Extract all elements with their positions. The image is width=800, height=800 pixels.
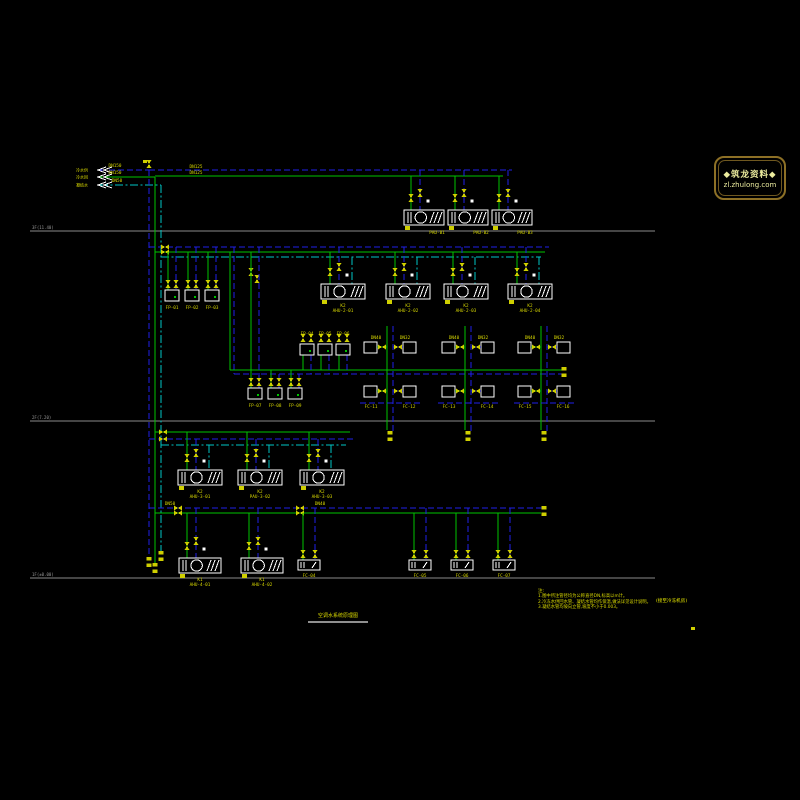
valve-half — [194, 541, 199, 545]
drain-pan-icon — [180, 574, 185, 578]
valve-icon — [194, 449, 199, 457]
valve-icon — [472, 389, 480, 394]
valve-half — [194, 280, 199, 284]
tick-mark — [143, 160, 147, 163]
unit-tag: FC-14 — [481, 404, 494, 410]
unit-tag: AHU-2-02 — [398, 308, 419, 314]
drain-pan-icon — [493, 226, 498, 230]
fcu-coil-mark — [309, 350, 311, 352]
valve-half — [460, 389, 464, 394]
unit-tag: FP-06 — [337, 331, 350, 337]
ahu-unit: K2AHU-3-01 — [178, 432, 222, 500]
valve-icon — [296, 506, 304, 511]
fcu-coil-mark — [277, 394, 279, 396]
fcu-coil-mark — [214, 296, 216, 298]
valve-half — [345, 338, 350, 342]
drain-pan-icon — [179, 486, 184, 490]
valve-icon — [186, 280, 191, 288]
valve-icon — [394, 389, 402, 394]
valve-half — [185, 546, 190, 550]
valve-half — [548, 345, 552, 350]
valve-half — [254, 453, 259, 457]
valve-icon — [249, 378, 254, 386]
piping-diagram: 3F(11.40)2F(7.20)1F(±0.00)冷水供冷水回凝结水DN150… — [0, 0, 800, 800]
riser-assembly: DN40DN32FC-11FC-12 — [360, 326, 420, 441]
valve-icon — [159, 437, 167, 442]
valve-half — [476, 389, 480, 394]
valve-half — [402, 267, 407, 271]
valve-half — [409, 194, 414, 198]
valve-half — [424, 554, 429, 558]
valve-half — [536, 389, 540, 394]
valve-half — [174, 284, 179, 288]
valve-half — [186, 284, 191, 288]
fan-coil-unit: FP-04 — [300, 331, 314, 374]
valve-half — [454, 550, 459, 554]
fan-coil-unit: FP-06 — [336, 331, 350, 374]
valve-half — [247, 542, 252, 546]
valve-half — [409, 198, 414, 202]
valve-half — [378, 389, 382, 394]
valve-half — [466, 550, 471, 554]
unit-tag: FC-12 — [403, 404, 416, 410]
fan-coil-unit: FP-05 — [318, 331, 332, 374]
valve-half — [337, 263, 342, 267]
valve-icon — [206, 280, 211, 288]
supply-source: 冷水供 — [76, 167, 112, 174]
unit-tag: PAU-B2 — [473, 230, 489, 236]
unit-tag: AHU-2-04 — [520, 308, 541, 314]
valve-icon — [185, 542, 190, 550]
pipe-endcap-icon — [153, 563, 158, 573]
fcu-box — [268, 388, 282, 399]
valve-half — [398, 389, 402, 394]
unit-tag: FC-04 — [303, 573, 316, 579]
valve-half — [289, 378, 294, 382]
unit-tag: PAU-B3 — [517, 230, 533, 236]
valve-half — [301, 338, 306, 342]
valve-icon — [277, 378, 282, 386]
valve-half — [496, 550, 501, 554]
valve-half — [214, 280, 219, 284]
fan-coil-unit: FC-04 — [298, 508, 320, 579]
fcu-box — [248, 388, 262, 399]
riser-assembly: DN40DN32FC-15FC-16 — [514, 326, 574, 441]
valve-icon — [508, 550, 513, 558]
valve-icon — [532, 389, 540, 394]
valve-half — [454, 554, 459, 558]
valve-half — [418, 193, 423, 197]
pipe-endcap-icon — [147, 557, 152, 567]
pipe-endcap-icon — [159, 551, 164, 561]
pipe-endcap-icon — [466, 431, 471, 441]
valve-half — [506, 189, 511, 193]
valve-icon — [418, 189, 423, 197]
drain-pan-icon — [509, 300, 514, 304]
note-line: 3.凝结水管均坡向立管,坡度不小于0.003。 — [538, 605, 708, 610]
ahu-unit: PAU-B1 — [404, 170, 445, 236]
pipe-size-label: DN150 — [109, 170, 122, 176]
fcu-box — [481, 342, 494, 353]
fcu-box — [364, 386, 377, 397]
unit-tag: FC-16 — [557, 404, 570, 410]
valve-half — [337, 267, 342, 271]
cad-drawing-canvas: 3F(11.40)2F(7.20)1F(±0.00)冷水供冷水回凝结水DN150… — [0, 0, 800, 800]
unit-tag: AHU-2-01 — [333, 308, 354, 314]
endcap-part — [542, 513, 547, 517]
endcap-part — [388, 438, 393, 442]
endcap-part — [542, 506, 547, 510]
valve-icon — [515, 268, 520, 276]
drain-pan-icon — [387, 300, 392, 304]
pipe-size-label: DN150 — [109, 163, 122, 169]
logo-site-url: zl.zhulong.com — [719, 181, 781, 189]
drain-pan-icon — [449, 226, 454, 230]
floor-label: 3F(11.40) — [32, 225, 54, 230]
valve-icon — [409, 194, 414, 202]
unit-tag: FP-03 — [206, 305, 219, 311]
ahu-unit: K1AHU-4-01 — [179, 508, 221, 588]
unit-tag: AHU-3-01 — [190, 494, 211, 500]
valve-half — [456, 345, 460, 350]
valve-half — [506, 193, 511, 197]
valve-half — [453, 194, 458, 198]
valve-half — [328, 272, 333, 276]
valve-icon — [257, 378, 262, 386]
union-icon — [265, 548, 268, 551]
valve-half — [319, 338, 324, 342]
valve-half — [289, 382, 294, 386]
valve-half — [393, 272, 398, 276]
valve-icon — [378, 345, 386, 350]
fcu-box — [557, 342, 570, 353]
valve-half — [424, 550, 429, 554]
pipe-size-label: DN32 — [554, 335, 565, 341]
valve-half — [536, 345, 540, 350]
valve-half — [378, 345, 382, 350]
ahu-unit: PAU-B2 — [448, 170, 489, 236]
union-icon — [427, 200, 430, 203]
fcu-box — [300, 344, 314, 355]
fcu-box — [442, 342, 455, 353]
valve-half — [309, 338, 314, 342]
ahu-unit: K1AHU-4-02 — [241, 508, 283, 588]
valve-half — [186, 280, 191, 284]
valve-half — [245, 458, 250, 462]
union-icon — [411, 274, 414, 277]
valve-half — [249, 382, 254, 386]
valve-half — [382, 345, 386, 350]
valve-icon — [424, 550, 429, 558]
valve-half — [394, 345, 398, 350]
valve-icon — [496, 550, 501, 558]
title-underline — [308, 621, 368, 623]
valve-icon — [194, 280, 199, 288]
valve-icon — [497, 194, 502, 202]
valve-icon — [454, 550, 459, 558]
valve-half — [165, 245, 169, 250]
drain-pan-icon — [445, 300, 450, 304]
valve-half — [166, 280, 171, 284]
valve-half — [515, 272, 520, 276]
drain-pan-icon — [322, 300, 327, 304]
valve-half — [214, 284, 219, 288]
valve-half — [508, 550, 513, 554]
valve-half — [316, 453, 321, 457]
valve-half — [178, 511, 182, 516]
fan-coil-unit: FC-05 — [409, 508, 431, 579]
fcu-box — [318, 344, 332, 355]
valve-half — [460, 267, 465, 271]
fcu-box — [481, 386, 494, 397]
valve-half — [269, 382, 274, 386]
valve-icon — [456, 345, 464, 350]
fan-coil-unit: FC-07 — [493, 508, 515, 579]
endcap-part — [159, 551, 164, 555]
valve-half — [476, 345, 480, 350]
drawing-title-text: 空调水系统原理图 — [318, 613, 358, 619]
ahu-unit: K2AHU-3-03 — [300, 432, 344, 500]
valve-half — [147, 164, 152, 168]
valve-half — [412, 550, 417, 554]
endcap-part — [542, 438, 547, 442]
side-note: (接至冷冻机房) — [656, 598, 687, 604]
valve-half — [257, 378, 262, 382]
pipe-size-label: DN40 — [315, 501, 326, 507]
fcu-box — [403, 342, 416, 353]
valve-half — [163, 437, 167, 442]
ahu-unit: K2AHU-2-04 — [508, 247, 552, 314]
endcap-part — [153, 570, 158, 574]
pipe-size-label: DN32 — [478, 335, 489, 341]
valve-half — [194, 284, 199, 288]
pipe-endcap-icon — [542, 506, 547, 516]
valve-half — [297, 378, 302, 382]
valve-half — [402, 263, 407, 267]
unit-tag: FP-07 — [249, 403, 262, 409]
valve-half — [297, 382, 302, 386]
valve-icon — [269, 378, 274, 386]
floor-line: 3F(11.40) — [30, 225, 655, 231]
valve-half — [328, 268, 333, 272]
pipe-size-label: DN40 — [371, 335, 382, 341]
valve-icon — [506, 189, 511, 197]
fan-coil-unit: FP-08 — [268, 370, 282, 409]
valve-icon — [159, 430, 167, 435]
valve-half — [552, 345, 556, 350]
valve-half — [163, 430, 167, 435]
pipe-size-label: DN125 — [190, 164, 203, 170]
valve-icon — [174, 280, 179, 288]
unit-tag: FC-06 — [456, 573, 469, 579]
valve-half — [249, 378, 254, 382]
pipe-size-label: DN125 — [190, 170, 203, 176]
endcap-part — [388, 431, 393, 435]
unit-tag: FP-01 — [166, 305, 179, 311]
valve-icon — [247, 542, 252, 550]
valve-half — [313, 550, 318, 554]
valve-half — [337, 338, 342, 342]
fcu-box — [442, 386, 455, 397]
valve-half — [277, 378, 282, 382]
valve-half — [307, 454, 312, 458]
valve-half — [174, 511, 178, 516]
valve-half — [451, 268, 456, 272]
drain-pan-icon — [301, 486, 306, 490]
valve-icon — [328, 268, 333, 276]
valve-icon — [451, 268, 456, 276]
drain-pan-icon — [239, 486, 244, 490]
union-icon — [533, 274, 536, 277]
union-icon — [203, 460, 206, 463]
fcu-box — [205, 290, 219, 301]
valve-half — [256, 537, 261, 541]
valve-icon — [548, 389, 556, 394]
valve-half — [496, 554, 501, 558]
valve-half — [393, 268, 398, 272]
valve-half — [418, 189, 423, 193]
endcap-part — [153, 563, 158, 567]
valve-icon — [256, 537, 261, 545]
valve-half — [254, 449, 259, 453]
fan-coil-unit: FP-09 — [288, 370, 302, 409]
ahu-unit: PAU-B3 — [492, 170, 533, 236]
pipe-size-label: DN50 — [165, 501, 176, 507]
valve-half — [194, 537, 199, 541]
unit-tag: AHU-4-01 — [190, 582, 211, 588]
valve-icon — [456, 389, 464, 394]
unit-tag: FP-05 — [319, 331, 332, 337]
union-icon — [263, 460, 266, 463]
union-icon — [346, 274, 349, 277]
unit-tag: PAU-3-02 — [250, 494, 271, 500]
valve-half — [269, 378, 274, 382]
valve-half — [194, 453, 199, 457]
valve-half — [515, 268, 520, 272]
valve-icon — [524, 263, 529, 271]
valve-half — [185, 454, 190, 458]
riser-assembly: DN40DN32FC-13FC-14 — [438, 326, 498, 441]
pipe-endcap-icon — [562, 367, 567, 377]
endcap-part — [542, 431, 547, 435]
unit-tag: FC-11 — [365, 404, 378, 410]
valve-icon — [337, 263, 342, 271]
valve-half — [161, 250, 165, 255]
endcap-part — [466, 438, 471, 442]
valve-half — [394, 389, 398, 394]
valve-half — [161, 245, 165, 250]
unit-tag: FP-09 — [289, 403, 302, 409]
valve-icon — [194, 537, 199, 545]
valve-half — [300, 506, 304, 511]
valve-half — [313, 554, 318, 558]
unit-tag: FC-05 — [414, 573, 427, 579]
source-label: 冷水回 — [76, 174, 88, 180]
unit-tag: FP-02 — [186, 305, 199, 311]
fcu-coil-mark — [174, 296, 176, 298]
valve-half — [166, 284, 171, 288]
valve-half — [466, 554, 471, 558]
valve-half — [206, 284, 211, 288]
valve-half — [524, 263, 529, 267]
pipe-size-label: DN40 — [525, 335, 536, 341]
valve-icon — [174, 506, 182, 511]
endcap-part — [562, 374, 567, 378]
endcap-part — [466, 431, 471, 435]
fcu-coil-mark — [257, 394, 259, 396]
fcu-coil-mark — [345, 350, 347, 352]
union-icon — [203, 548, 206, 551]
valve-half — [451, 272, 456, 276]
valve-half — [247, 546, 252, 550]
pipe-endcap-icon — [542, 431, 547, 441]
valve-half — [453, 198, 458, 202]
valve-icon — [161, 245, 169, 250]
valve-icon — [532, 345, 540, 350]
drain-pan-icon — [405, 226, 410, 230]
fan-coil-unit: FC-06 — [451, 508, 473, 579]
valve-half — [147, 160, 152, 164]
valve-half — [206, 280, 211, 284]
valve-half — [301, 554, 306, 558]
fcu-box — [165, 290, 179, 301]
valve-icon — [466, 550, 471, 558]
unit-tag: AHU-2-03 — [456, 308, 477, 314]
valve-half — [552, 389, 556, 394]
union-icon — [469, 274, 472, 277]
valve-half — [456, 389, 460, 394]
valve-half — [178, 506, 182, 511]
valve-half — [174, 280, 179, 284]
valve-half — [301, 550, 306, 554]
source-label: 凝结水 — [76, 182, 88, 188]
unit-tag: PAU-B1 — [429, 230, 445, 236]
valve-icon — [472, 345, 480, 350]
valve-icon — [307, 454, 312, 462]
valve-icon — [378, 389, 386, 394]
valve-icon — [412, 550, 417, 558]
valve-half — [472, 389, 476, 394]
ahu-unit: K2PAU-3-02 — [238, 432, 282, 500]
unit-tag: FP-04 — [301, 331, 314, 337]
valve-icon — [254, 449, 259, 457]
unit-tag: FC-15 — [519, 404, 532, 410]
valve-half — [185, 458, 190, 462]
valve-icon — [214, 280, 219, 288]
source-label: 冷水供 — [76, 167, 88, 173]
fcu-box — [518, 386, 531, 397]
valve-half — [462, 193, 467, 197]
valve-icon — [453, 194, 458, 202]
valve-icon — [174, 511, 182, 516]
valve-half — [277, 382, 282, 386]
valve-half — [245, 454, 250, 458]
valve-half — [460, 263, 465, 267]
endcap-part — [147, 557, 152, 561]
floor-label: 1F(±0.00) — [32, 572, 54, 577]
valve-icon — [393, 268, 398, 276]
valve-half — [296, 506, 300, 511]
drawing-title: 空调水系统原理图 — [300, 612, 376, 623]
fcu-box — [185, 290, 199, 301]
pipe-endcap-icon — [388, 431, 393, 441]
valve-half — [296, 511, 300, 516]
valve-icon — [185, 454, 190, 462]
valve-half — [327, 338, 332, 342]
valve-half — [257, 382, 262, 386]
valve-icon — [297, 378, 302, 386]
valve-half — [532, 389, 536, 394]
